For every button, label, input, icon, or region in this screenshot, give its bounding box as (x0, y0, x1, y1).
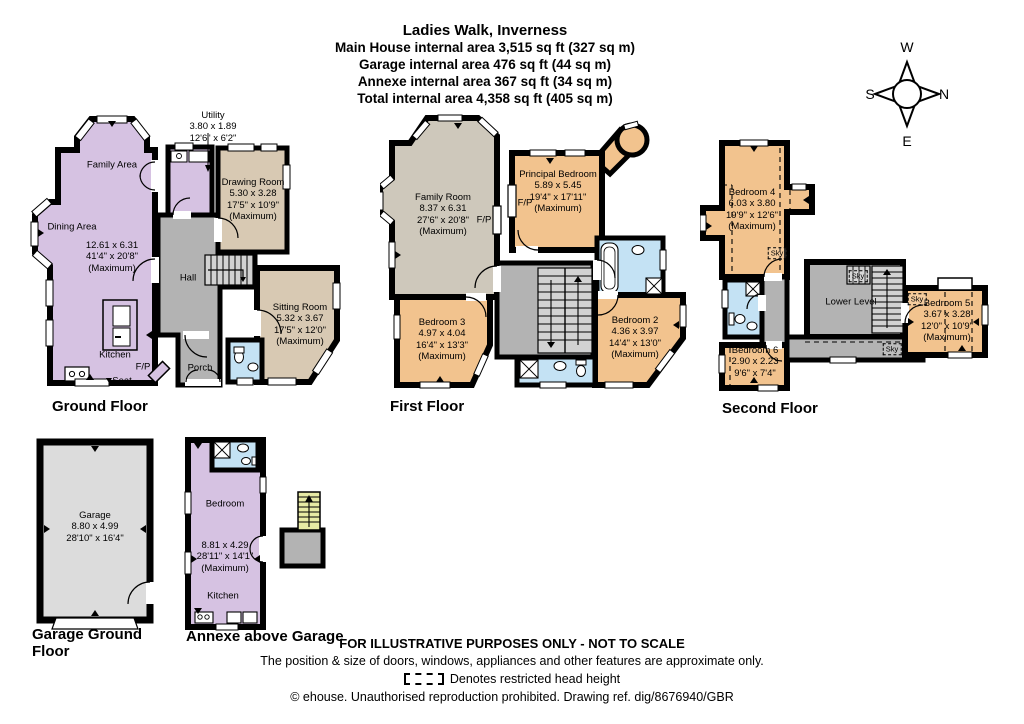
first-floor-plan: Family Room8.37 x 6.3127'6" x 20'8"(Maxi… (380, 110, 700, 410)
area-line-main-house: Main House internal area 3,515 sq ft (32… (165, 39, 805, 56)
footer-approximate-note: The position & size of doors, windows, a… (0, 654, 1024, 668)
header: Ladies Walk, Inverness Main House intern… (165, 22, 805, 107)
bedroom-6-label: Bedroom 62.90 x 2.239'6" x 7'4" (731, 345, 778, 379)
garage-room-label: Garage8.80 x 4.9928'10" x 16'4" (66, 510, 123, 544)
compass-right-label: N (939, 86, 949, 102)
bedroom-5-label: Bedroom 53.67 x 3.2812'0" x 10'9"(Maximu… (921, 298, 973, 344)
footer-restricted-head-height: Denotes restricted head height (0, 672, 1024, 686)
principal-bedroom-label: Principal Bedroom5.89 x 5.4519'4" x 17'1… (519, 169, 597, 215)
ground-stairs (205, 255, 253, 285)
bedroom-3-label: Bedroom 34.97 x 4.0416'4" x 13'3"(Maximu… (416, 317, 468, 363)
kitchen-label: Kitchen (99, 349, 131, 360)
compass-top-label: W (900, 39, 914, 55)
principal-fireplace-icon (508, 185, 516, 217)
annexe-kitchen-label: Kitchen (207, 590, 239, 601)
compass-left-label: S (865, 86, 874, 102)
sky-label: Sky (849, 270, 868, 282)
turret (617, 125, 647, 155)
annexe-plan: Bedroom 8.81 x 4.2928'11" x 14'1"(Maximu… (183, 432, 343, 632)
first-stairs (538, 268, 592, 353)
family-fireplace-icon (493, 206, 501, 234)
sitting-room-label: Sitting Room5.32 x 3.6717'5" x 12'0"(Max… (273, 302, 327, 348)
bedroom-2-label: Bedroom 24.36 x 3.9714'4" x 13'0"(Maximu… (609, 315, 661, 361)
ground-floor-plan: Family Area Dining Area 12.61 x 6.3141'4… (15, 105, 365, 405)
bedroom-4-label: Bedroom 46.03 x 3.8019'9" x 12'6"(Maximu… (726, 187, 778, 233)
annexe-bedroom-label: Bedroom (206, 498, 245, 509)
ground-floor-drawing (15, 105, 365, 405)
drawing-room-label: Drawing Room5.30 x 3.2817'5" x 10'9"(Max… (222, 177, 285, 223)
footer-restricted-text: Denotes restricted head height (450, 672, 620, 686)
family-area-label: Family Area (87, 159, 137, 170)
footer-copyright: © ehouse. Unauthorised reproduction proh… (0, 690, 1024, 704)
hall-label: Hall (180, 272, 196, 283)
family-room-label: Family Room8.37 x 6.3127'6" x 20'8"(Maxi… (415, 192, 471, 238)
sky-label: Sky (883, 343, 902, 355)
utility-label: Utility3.80 x 1.8912'6" x 6'2" (189, 110, 236, 144)
annexe-drawing (183, 432, 343, 632)
seat-label: Seat (112, 375, 132, 386)
bedroom5-dormer-window (938, 278, 972, 290)
lower-level-label: Lower Level (825, 296, 876, 307)
first-floor-drawing (380, 110, 700, 410)
fireplace-label: F/P (136, 361, 151, 372)
wc-room (228, 340, 262, 382)
annexe-landing (282, 530, 323, 566)
annexe-stairs (298, 492, 320, 530)
annexe-dims-label: 8.81 x 4.2928'11" x 14'1"(Maximum) (197, 540, 254, 574)
restricted-head-height-icon (404, 673, 444, 685)
utility-appliances-icon (171, 151, 209, 162)
sky-label: Sky (768, 247, 787, 259)
shower-icon-top (646, 278, 662, 294)
family-fireplace-label: F/P (477, 214, 492, 225)
area-line-annexe: Annexe internal area 367 sq ft (34 sq m) (165, 73, 805, 90)
first-floor-title: First Floor (390, 398, 464, 415)
second-floor-plan: Bedroom 46.03 x 3.8019'9" x 12'6"(Maximu… (700, 130, 1000, 420)
garage-plan: Garage8.80 x 4.9928'10" x 16'4" (28, 432, 178, 637)
sky-label: Sky (908, 293, 927, 305)
ground-floor-title: Ground Floor (52, 398, 148, 415)
kitchen-island (103, 300, 137, 350)
sink-icon-top (632, 246, 644, 255)
footer-not-to-scale: FOR ILLUSTRATIVE PURPOSES ONLY - NOT TO … (0, 636, 1024, 651)
open-plan-dims-label: 12.61 x 6.3141'4" x 20'8"(Maximum) (86, 240, 138, 274)
area-line-garage: Garage internal area 476 sq ft (44 sq m) (165, 56, 805, 73)
second-floor-title: Second Floor (722, 400, 818, 417)
bathtub-icon (601, 243, 618, 293)
porch-label: Porch (188, 362, 213, 373)
page-title: Ladies Walk, Inverness (165, 22, 805, 39)
dining-area-label: Dining Area (47, 221, 96, 232)
